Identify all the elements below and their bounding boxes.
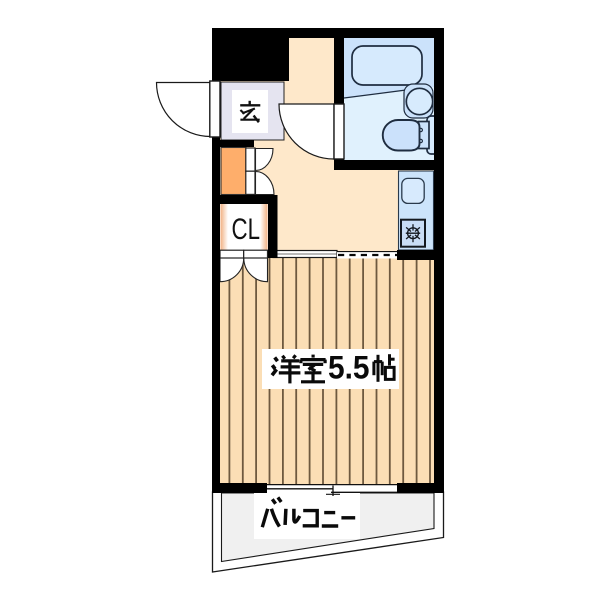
- svg-text:CL: CL: [232, 213, 261, 246]
- svg-text:5.5: 5.5: [328, 350, 370, 386]
